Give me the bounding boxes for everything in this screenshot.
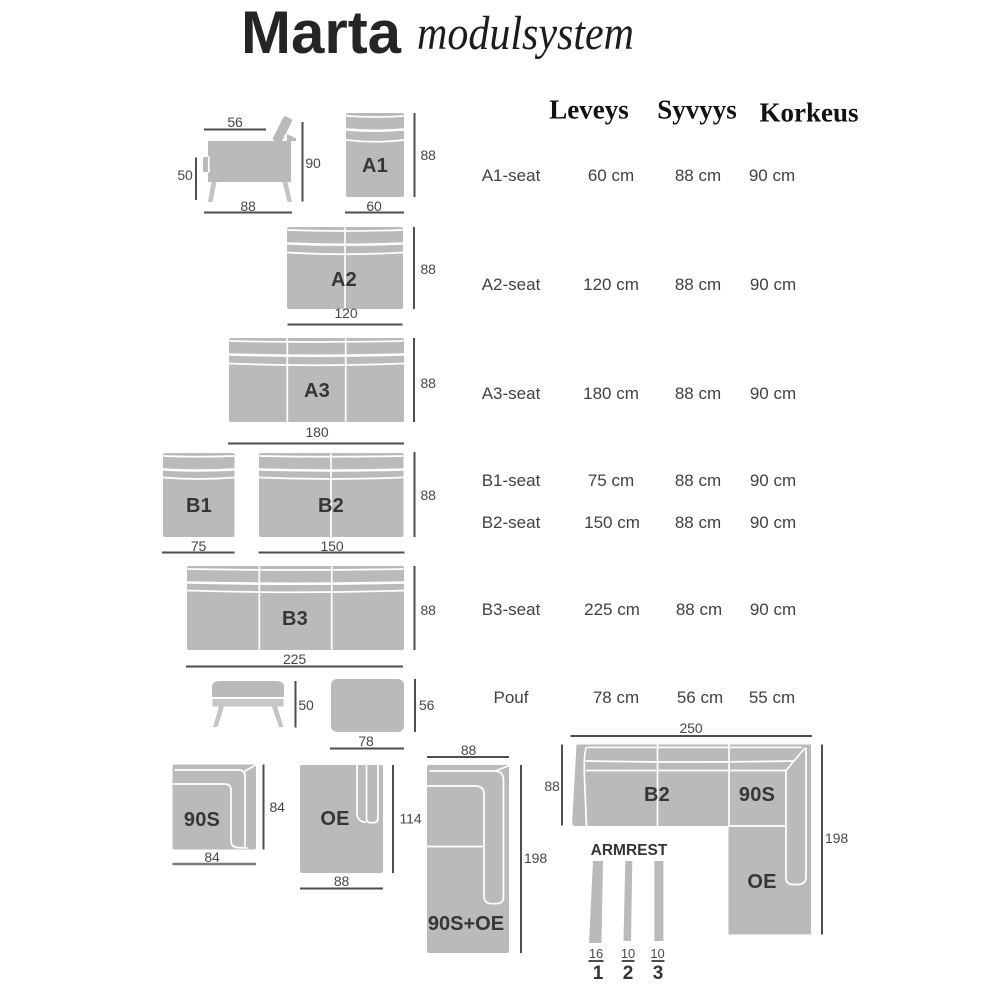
svg-text:50: 50 xyxy=(177,167,193,183)
svg-text:B2: B2 xyxy=(318,495,344,517)
svg-text:180: 180 xyxy=(305,424,328,440)
svg-text:88 cm: 88 cm xyxy=(675,513,721,532)
svg-text:50: 50 xyxy=(298,697,314,713)
svg-text:90S: 90S xyxy=(739,784,775,806)
svg-text:90S+OE: 90S+OE xyxy=(428,913,504,935)
svg-text:56: 56 xyxy=(419,697,435,713)
svg-text:56 cm: 56 cm xyxy=(677,688,723,707)
svg-text:B2-seat: B2-seat xyxy=(482,513,541,532)
svg-text:120: 120 xyxy=(334,305,357,321)
svg-text:78: 78 xyxy=(358,733,374,749)
svg-text:90 cm: 90 cm xyxy=(750,600,796,619)
svg-text:OE: OE xyxy=(747,871,776,893)
svg-text:modulsystem: modulsystem xyxy=(417,7,634,60)
svg-text:78 cm: 78 cm xyxy=(593,688,639,707)
svg-text:84: 84 xyxy=(270,799,286,815)
svg-text:10: 10 xyxy=(621,946,635,961)
svg-text:225: 225 xyxy=(283,651,306,667)
svg-text:B1: B1 xyxy=(186,495,212,517)
svg-text:90 cm: 90 cm xyxy=(750,384,796,403)
svg-text:198: 198 xyxy=(825,830,848,846)
svg-text:90 cm: 90 cm xyxy=(750,471,796,490)
svg-text:225 cm: 225 cm xyxy=(584,600,640,619)
svg-text:56: 56 xyxy=(227,114,243,130)
svg-text:60 cm: 60 cm xyxy=(588,166,634,185)
svg-text:Korkeus: Korkeus xyxy=(759,98,858,128)
svg-text:55 cm: 55 cm xyxy=(749,688,795,707)
svg-text:10: 10 xyxy=(650,946,664,961)
svg-text:88: 88 xyxy=(421,147,437,163)
svg-text:OE: OE xyxy=(320,808,349,830)
svg-text:114: 114 xyxy=(400,811,422,827)
svg-text:88 cm: 88 cm xyxy=(676,600,722,619)
svg-text:1: 1 xyxy=(593,963,604,984)
svg-text:84: 84 xyxy=(204,849,220,865)
svg-text:90: 90 xyxy=(305,155,321,171)
svg-text:75 cm: 75 cm xyxy=(588,471,634,490)
svg-text:A3: A3 xyxy=(304,380,330,402)
svg-text:90 cm: 90 cm xyxy=(750,275,796,294)
svg-text:180 cm: 180 cm xyxy=(583,384,639,403)
svg-text:90S: 90S xyxy=(184,809,220,831)
svg-text:88: 88 xyxy=(461,742,477,758)
svg-text:B1-seat: B1-seat xyxy=(482,471,541,490)
svg-text:88: 88 xyxy=(421,375,437,391)
svg-text:A1: A1 xyxy=(362,155,388,177)
svg-text:A3-seat: A3-seat xyxy=(482,384,541,403)
svg-text:90 cm: 90 cm xyxy=(749,166,795,185)
svg-text:88: 88 xyxy=(334,873,350,889)
svg-text:150 cm: 150 cm xyxy=(584,513,640,532)
svg-text:88 cm: 88 cm xyxy=(675,166,721,185)
svg-text:250: 250 xyxy=(679,720,702,736)
svg-text:B3: B3 xyxy=(282,608,308,630)
svg-text:198: 198 xyxy=(524,850,547,866)
svg-text:A2: A2 xyxy=(331,269,357,291)
svg-text:88: 88 xyxy=(421,602,437,618)
svg-text:3: 3 xyxy=(653,963,664,984)
svg-text:Leveys: Leveys xyxy=(549,95,628,125)
svg-text:Pouf: Pouf xyxy=(494,688,529,707)
svg-text:88: 88 xyxy=(544,778,560,794)
svg-text:2: 2 xyxy=(623,963,634,984)
svg-text:88: 88 xyxy=(421,261,437,277)
svg-text:B3-seat: B3-seat xyxy=(482,600,541,619)
svg-text:ARMREST: ARMREST xyxy=(591,842,668,859)
svg-text:88 cm: 88 cm xyxy=(675,275,721,294)
svg-text:A1-seat: A1-seat xyxy=(482,166,541,185)
svg-text:Marta: Marta xyxy=(241,0,402,66)
svg-text:90 cm: 90 cm xyxy=(750,513,796,532)
svg-text:Syvyys: Syvyys xyxy=(657,95,737,125)
svg-text:16: 16 xyxy=(589,946,603,961)
svg-text:88 cm: 88 cm xyxy=(675,384,721,403)
svg-text:88 cm: 88 cm xyxy=(675,471,721,490)
svg-text:120 cm: 120 cm xyxy=(583,275,639,294)
svg-text:B2: B2 xyxy=(644,784,670,806)
svg-text:88: 88 xyxy=(421,487,437,503)
svg-text:A2-seat: A2-seat xyxy=(482,275,541,294)
